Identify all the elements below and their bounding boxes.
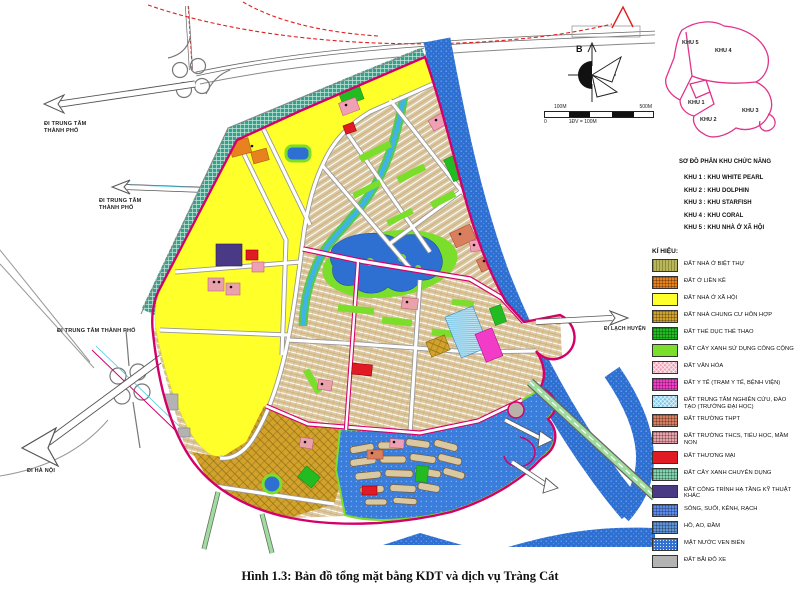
legend-item: ĐẤT THƯƠNG MẠI (652, 451, 800, 464)
legend-label: ĐẤT Ở LIỀN KỀ (684, 276, 726, 285)
boundary-knob (508, 402, 524, 418)
legend-item: ĐẤT CÔNG TRÌNH HẠ TẦNG KỸ THUẬT KHÁC (652, 485, 800, 500)
scale-tick-500m: 500M (639, 104, 652, 110)
legend-swatch (652, 327, 678, 340)
inset-title: SƠ ĐỒ PHÂN KHU CHỨC NĂNG (652, 159, 798, 165)
legend-item: ĐẤT NHÀ CHUNG CƯ HỖN HỢP (652, 310, 800, 323)
legend-item: ĐẤT CÂY XANH CHUYÊN DỤNG (652, 468, 800, 481)
legend-item: ĐẤT TRƯỜNG THPT (652, 414, 800, 427)
scale-bar-strip (544, 111, 654, 118)
legend-swatch (652, 451, 678, 464)
legend-item: ĐẤT NHÀ Ở BIỆT THỰ (652, 259, 800, 272)
road-label-city-center-3: ĐI TRUNG TÂM THÀNH PHỐ (57, 328, 136, 335)
legend-swatch (652, 468, 678, 481)
inset-zone-list-item: KHU 3 : KHU STARFISH (684, 197, 798, 210)
legend-item: ĐẤT BÃI ĐỖ XE (652, 555, 800, 568)
legend-swatch (652, 344, 678, 357)
inset-zone-label-2: KHU 2 (700, 117, 717, 123)
inset-zone-list: KHU 1 : KHU WHITE PEARLKHU 2 : KHU DOLPH… (652, 172, 798, 235)
planning-map-page: B ĐI TRUNG TÂMTHÀNH PHỐ ĐI TRUNG TÂMTHÀN… (0, 0, 800, 600)
legend-label: HỒ, AO, ĐẦM (684, 521, 720, 530)
inset-zone-label-5: KHU 5 (682, 40, 699, 46)
legend-swatch (652, 521, 678, 534)
legend-swatch (652, 259, 678, 272)
inset-zone-label-4: KHU 4 (715, 48, 732, 54)
inset-outline-canvas (652, 18, 798, 150)
legend-label: ĐẤT TRƯỜNG THCS, TIỂU HỌC, MẦM NON (684, 431, 794, 446)
inset-zone-list-item: KHU 4 : KHU CORAL (684, 210, 798, 223)
legend-title: KÍ HIỆU: (652, 248, 800, 255)
legend-item: MẶT NƯỚC VEN BIỂN (652, 538, 800, 551)
legend-item: ĐẤT THỂ DỤC THỂ THAO (652, 327, 800, 340)
legend-panel: KÍ HIỆU: ĐẤT NHÀ Ở BIỆT THỰ ĐẤT Ở LIỀN K… (652, 248, 800, 572)
inset-map: KHU 5 KHU 4 KHU 1 KHU 2 KHU 3 SƠ ĐỒ PHÂN… (652, 18, 798, 250)
legend-item: ĐẤT TRUNG TÂM NGHIÊN CỨU, ĐÀO TẠO (TRƯỜN… (652, 395, 800, 410)
legend-label: ĐẤT TRƯỜNG THPT (684, 414, 740, 423)
legend-swatch (652, 431, 678, 444)
road-label-city-center-2: ĐI TRUNG TÂMTHÀNH PHỐ (99, 198, 141, 212)
inset-zone-label-1: KHU 1 (688, 100, 705, 106)
scale-note: 1ĐV = 100M (569, 119, 597, 125)
legend-label: ĐẤT NHÀ Ở BIỆT THỰ (684, 259, 745, 268)
legend-item: ĐẤT CÂY XANH SỬ DỤNG CÔNG CỘNG (652, 344, 800, 357)
legend-swatch (652, 555, 678, 568)
road-label-hanoi: ĐI HÀ NỘI (27, 468, 55, 475)
legend-swatch (652, 395, 678, 408)
figure-caption: Hình 1.3: Bản đồ tổng mặt bằng KDT và dị… (0, 569, 800, 584)
legend-swatch (652, 276, 678, 289)
legend-swatch (652, 414, 678, 427)
scale-zero: 0 (544, 119, 547, 125)
legend-label: ĐẤT Y TẾ (TRẠM Y TẾ, BỆNH VIỆN) (684, 378, 780, 387)
legend-label: ĐẤT THỂ DỤC THỂ THAO (684, 327, 753, 336)
legend-label: ĐẤT VĂN HÓA (684, 361, 723, 370)
compass-north-label: B (576, 44, 583, 54)
compass-rose: B (568, 43, 621, 102)
scale-tick-100m: 100M (554, 104, 567, 110)
legend-item: ĐẤT TRƯỜNG THCS, TIỂU HỌC, MẦM NON (652, 431, 800, 446)
inset-zone-label-3: KHU 3 (742, 108, 759, 114)
map-canvas: B (0, 0, 655, 565)
legend-item: ĐẤT VĂN HÓA (652, 361, 800, 374)
scale-bar: 100M 500M 0 1ĐV = 100M (544, 104, 654, 125)
legend-swatch (652, 485, 678, 498)
legend-swatch (652, 293, 678, 306)
legend-items: ĐẤT NHÀ Ở BIỆT THỰ ĐẤT Ở LIỀN KỀ ĐẤT NHÀ… (652, 259, 800, 568)
legend-label: MẶT NƯỚC VEN BIỂN (684, 538, 745, 547)
road-label-city-center-1: ĐI TRUNG TÂMTHÀNH PHỐ (44, 121, 86, 135)
legend-item: SÔNG, SUỐI, KÊNH, RẠCH (652, 504, 800, 517)
legend-item: HỒ, AO, ĐẦM (652, 521, 800, 534)
road-label-lach-huyen: ĐI LẠCH HUYỆN (604, 326, 646, 333)
legend-swatch (652, 538, 678, 551)
legend-item: ĐẤT Ở LIỀN KỀ (652, 276, 800, 289)
legend-label: SÔNG, SUỐI, KÊNH, RẠCH (684, 504, 757, 513)
legend-label: ĐẤT CÂY XANH SỬ DỤNG CÔNG CỘNG (684, 344, 794, 353)
legend-swatch (652, 504, 678, 517)
legend-label: ĐẤT TRUNG TÂM NGHIÊN CỨU, ĐÀO TẠO (TRƯỜN… (684, 395, 794, 410)
legend-label: ĐẤT BÃI ĐỖ XE (684, 555, 726, 564)
legend-label: ĐẤT NHÀ Ở XÃ HỘI (684, 293, 737, 302)
legend-label: ĐẤT THƯƠNG MẠI (684, 451, 735, 460)
legend-label: ĐẤT CÔNG TRÌNH HẠ TẦNG KỸ THUẬT KHÁC (684, 485, 794, 500)
legend-item: ĐẤT NHÀ Ở XÃ HỘI (652, 293, 800, 306)
inset-zone-list-item: KHU 5 : KHU NHÀ Ở XÃ HỘI (684, 222, 798, 235)
legend-label: ĐẤT CÂY XANH CHUYÊN DỤNG (684, 468, 771, 477)
legend-item: ĐẤT Y TẾ (TRẠM Y TẾ, BỆNH VIỆN) (652, 378, 800, 391)
legend-swatch (652, 310, 678, 323)
legend-swatch (652, 361, 678, 374)
legend-label: ĐẤT NHÀ CHUNG CƯ HỖN HỢP (684, 310, 772, 319)
legend-swatch (652, 378, 678, 391)
inset-zone-list-item: KHU 2 : KHU DOLPHIN (684, 185, 798, 198)
inset-zone-list-item: KHU 1 : KHU WHITE PEARL (684, 172, 798, 185)
